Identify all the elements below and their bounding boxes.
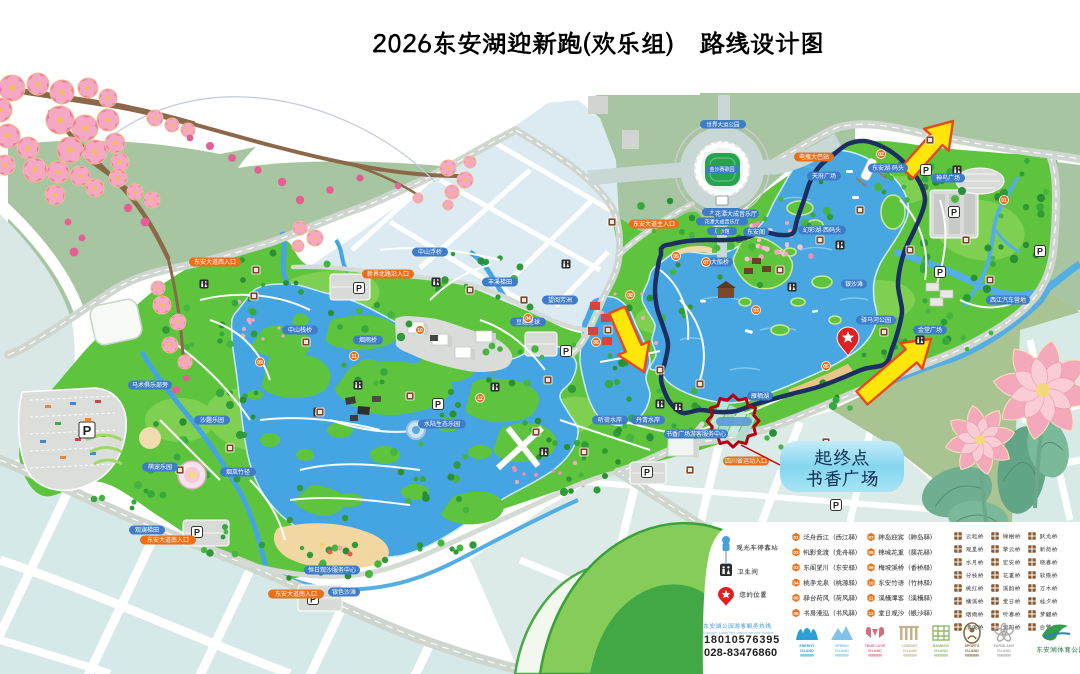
svg-text:05: 05 [793, 596, 799, 601]
svg-text:银色沙滩: 银色沙滩 [332, 588, 356, 596]
svg-text:P: P [951, 208, 957, 218]
svg-text:10: 10 [868, 580, 874, 585]
svg-text:天府广场: 天府广场 [812, 172, 836, 180]
svg-text:03: 03 [753, 308, 759, 314]
svg-text:P: P [937, 268, 943, 278]
svg-text:东安大道西入口: 东安大道西入口 [194, 258, 236, 266]
svg-text:FARMLAND: FARMLAND [994, 644, 1015, 648]
svg-text:大船桥: 大船桥 [711, 258, 729, 266]
svg-text:P: P [194, 528, 200, 538]
svg-text:马术俱乐部旁: 马术俱乐部旁 [132, 381, 168, 389]
svg-text:中山浮桥: 中山浮桥 [418, 248, 442, 256]
svg-text:06: 06 [593, 340, 599, 346]
svg-text:雁栖湖: 雁栖湖 [751, 392, 769, 400]
svg-text:听荷水岸: 听荷水岸 [598, 416, 622, 424]
svg-text:P: P [833, 501, 839, 511]
svg-text:沙趣乐园: 沙趣乐园 [200, 416, 224, 424]
svg-text:12: 12 [477, 396, 483, 402]
svg-text:02: 02 [878, 152, 884, 158]
svg-text:07: 07 [703, 260, 709, 266]
svg-text:11: 11 [869, 596, 874, 601]
svg-text:金堂广场: 金堂广场 [918, 326, 942, 334]
svg-text:ENERGY: ENERGY [799, 644, 815, 648]
svg-text:05: 05 [673, 254, 679, 260]
svg-text:东安大道南入口: 东安大道南入口 [275, 590, 317, 598]
svg-text:金沙赛歌园: 金沙赛歌园 [709, 166, 734, 173]
svg-text:P: P [356, 284, 362, 294]
svg-text:09: 09 [257, 360, 263, 366]
svg-text:幻彩湖·西码头: 幻彩湖·西码头 [803, 226, 841, 234]
svg-text:萌宠乐园: 萌宠乐园 [148, 463, 172, 471]
svg-text:04: 04 [793, 580, 799, 585]
svg-text:09: 09 [868, 565, 874, 570]
svg-text:028-83476860: 028-83476860 [704, 647, 777, 659]
svg-text:12: 12 [868, 611, 874, 616]
svg-text:神鸟广场: 神鸟广场 [936, 174, 960, 182]
svg-text:TRUE LOVE: TRUE LOVE [865, 644, 886, 648]
svg-text:东安湖·码头: 东安湖·码头 [872, 164, 904, 172]
svg-text:ISLAND: ISLAND [903, 649, 917, 653]
svg-text:08: 08 [868, 550, 874, 555]
svg-text:01: 01 [793, 535, 799, 540]
svg-text:P: P [435, 400, 441, 410]
svg-text:BAMBOO: BAMBOO [933, 644, 950, 648]
svg-text:观澜梯田: 观澜梯田 [135, 526, 159, 534]
svg-text:水陆生态乐园: 水陆生态乐园 [424, 420, 460, 428]
svg-text:烟岚竹径: 烟岚竹径 [226, 468, 250, 476]
svg-text:P: P [563, 347, 569, 357]
svg-text:SPORTS: SPORTS [965, 644, 980, 648]
svg-text:03: 03 [793, 565, 799, 570]
svg-text:ISLAND: ISLAND [800, 649, 814, 653]
svg-text:06: 06 [793, 611, 799, 616]
svg-text:07: 07 [868, 535, 874, 540]
svg-text:ISLAND: ISLAND [868, 649, 882, 653]
svg-text:18010576395: 18010576395 [704, 634, 780, 646]
svg-text:银沙滩: 银沙滩 [845, 280, 863, 288]
svg-text:花潭大成音乐厅: 花潭大成音乐厅 [715, 210, 757, 218]
svg-text:驿马河公园: 驿马河公园 [861, 316, 891, 324]
svg-text:ISLAND: ISLAND [835, 649, 849, 653]
svg-text:P: P [1037, 247, 1043, 257]
svg-text:世界大运公园: 世界大运公园 [706, 121, 740, 129]
svg-text:01: 01 [1001, 198, 1007, 204]
svg-text:丹青水岸: 丹青水岸 [636, 416, 660, 424]
svg-text:恒日观沙服务中心: 恒日观沙服务中心 [308, 566, 356, 574]
svg-text:P: P [644, 468, 650, 478]
svg-text:电瓶大巴站: 电瓶大巴站 [799, 153, 829, 161]
svg-text:LIBRARY: LIBRARY [902, 644, 918, 648]
svg-text:SPRING: SPRING [835, 644, 849, 648]
svg-text:东安大道南入口: 东安大道南入口 [147, 536, 189, 544]
svg-text:花潭大成音乐厅: 花潭大成音乐厅 [704, 219, 739, 226]
svg-text:东安大道主入口: 东安大道主入口 [633, 220, 675, 228]
svg-text:中山栈桥: 中山栈桥 [288, 326, 312, 334]
svg-text:P: P [83, 423, 92, 438]
svg-text:ISLAND: ISLAND [934, 649, 948, 653]
svg-text:西江汽车营地: 西江汽车营地 [990, 296, 1026, 304]
svg-text:11: 11 [351, 354, 357, 360]
svg-text:02: 02 [793, 550, 799, 555]
svg-text:P: P [923, 166, 929, 176]
svg-text:烟雨桥: 烟雨桥 [359, 336, 377, 344]
svg-text:05: 05 [823, 364, 829, 370]
svg-text:10: 10 [417, 328, 423, 334]
svg-text:ISLAND: ISLAND [997, 649, 1011, 653]
svg-text:04: 04 [525, 316, 531, 322]
svg-text:丰溪梯田: 丰溪梯田 [488, 278, 512, 286]
svg-text:新界北路沿入口: 新界北路沿入口 [367, 270, 409, 278]
svg-text:望阅芳洲: 望阅芳洲 [548, 296, 572, 304]
svg-text:四川省运动入口: 四川省运动入口 [725, 457, 767, 465]
svg-text:08: 08 [627, 293, 633, 299]
svg-text:ISLAND: ISLAND [965, 649, 979, 653]
svg-text:书香广场游客服务中心: 书香广场游客服务中心 [666, 430, 726, 438]
svg-text:东安阁: 东安阁 [747, 228, 765, 236]
